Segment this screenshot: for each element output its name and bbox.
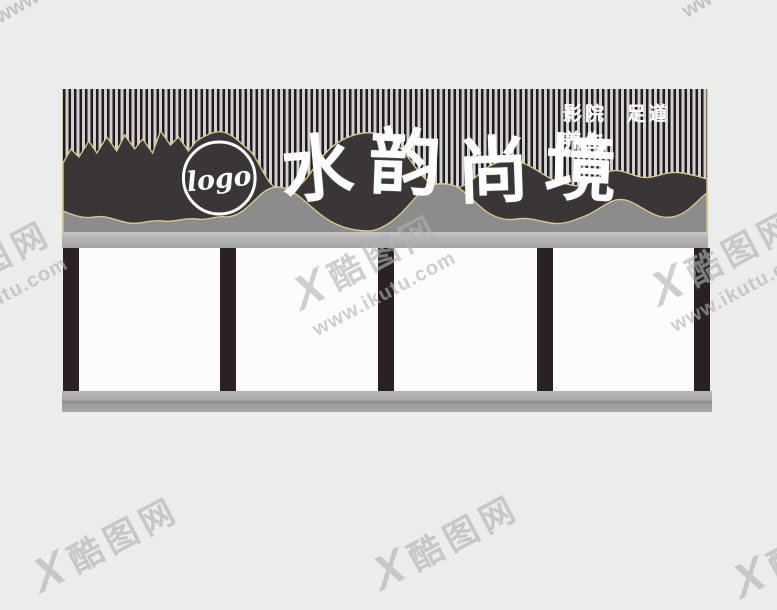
watermark-site-name: 酷图网 <box>0 206 59 306</box>
pillar <box>220 248 236 391</box>
sign-subtitle: 影院 足道 养生 <box>563 99 707 153</box>
pillar <box>694 248 710 391</box>
watermark-x-icon: X <box>26 538 72 604</box>
watermark-site-name: 酷图网 <box>58 482 187 582</box>
watermark-site-name: 酷图网 <box>758 488 777 588</box>
title-char-1: 水 <box>278 130 356 208</box>
design-canvas: logo 水 韵 尚 境 影院 足道 养生 X 酷图网 www.ikutu.co… <box>0 0 777 539</box>
colonnade <box>63 248 710 391</box>
watermark-fragment: www <box>0 0 43 29</box>
watermark-url: www.ikutu.com <box>0 253 72 348</box>
watermark-logo-row: X 酷图网 <box>23 480 188 602</box>
watermark: X 酷图网 <box>363 478 528 600</box>
watermark-x-icon: X <box>366 536 412 602</box>
watermark-logo-row: X 酷图网 <box>723 486 777 608</box>
watermark: X 酷图网 <box>23 480 188 602</box>
watermark-site-name: 酷图网 <box>398 480 527 580</box>
pillar <box>63 248 79 391</box>
title-char-2: 韵 <box>368 126 442 200</box>
watermark-logo-row: X 酷图网 <box>363 478 528 600</box>
fascia-strip <box>62 232 708 248</box>
watermark-x-icon: X <box>726 544 772 610</box>
signboard: logo 水 韵 尚 境 影院 足道 养生 <box>62 89 708 232</box>
watermark-fragment: ww <box>678 0 716 23</box>
pillar <box>537 248 553 391</box>
title-char-3: 尚 <box>456 134 530 208</box>
base-strip <box>62 391 712 412</box>
pillar <box>378 248 394 391</box>
watermark: X 酷图网 <box>723 486 777 608</box>
watermark-logo-row: X 酷图网 <box>0 203 60 325</box>
